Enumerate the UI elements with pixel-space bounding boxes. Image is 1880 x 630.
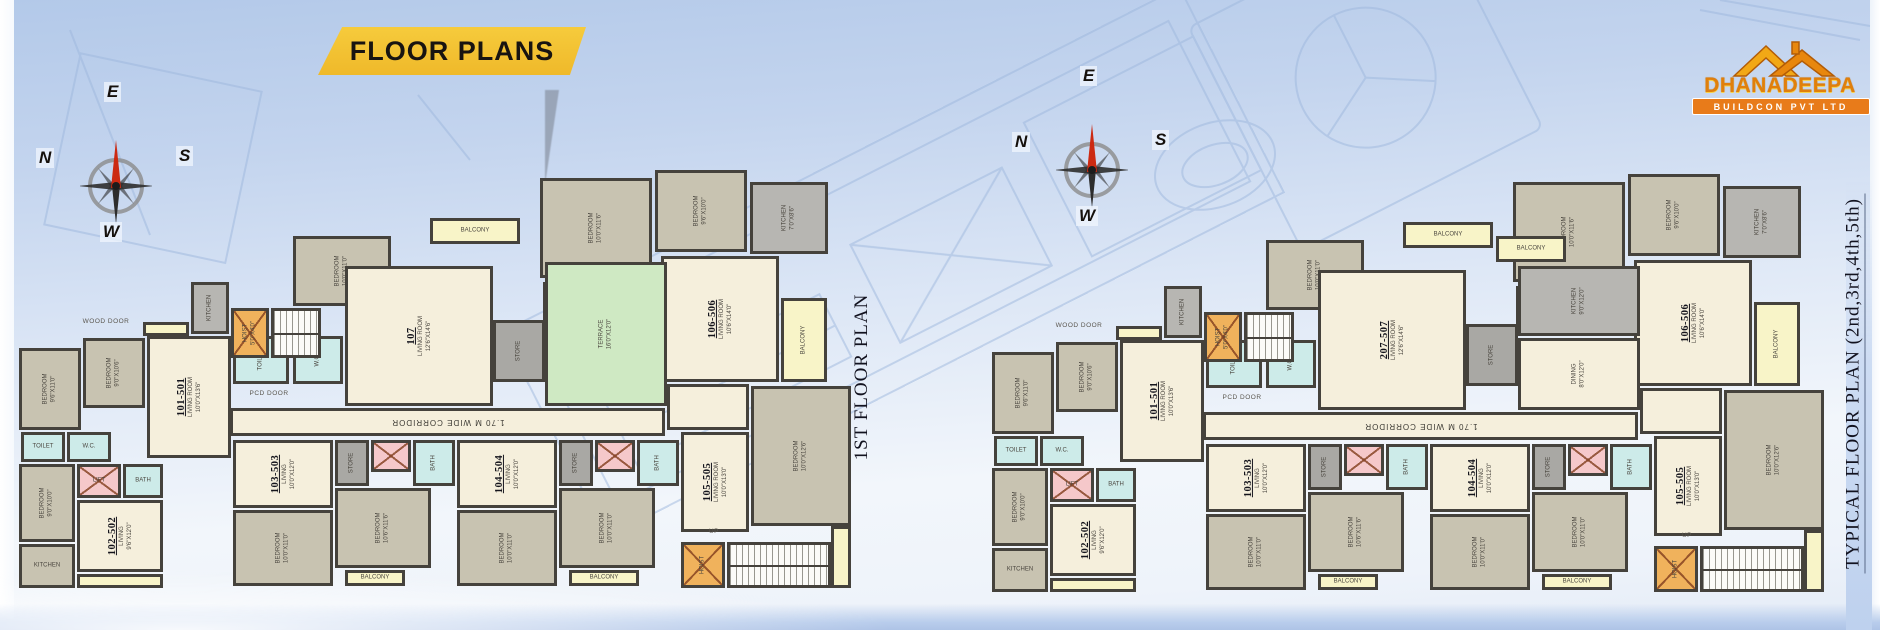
room-label: UP bbox=[709, 528, 719, 536]
unit-102-502: 102-502LIVING 9'6"X12'0" bbox=[77, 500, 163, 572]
room-bedroom: BEDROOM 10'0"X12'6" bbox=[751, 386, 851, 526]
unit-number-label: 104-504LIVING 10'0"X12'0" bbox=[1466, 459, 1494, 498]
room-label: LIFT bbox=[93, 477, 105, 485]
room-wood-door: WOOD DOOR bbox=[73, 316, 139, 328]
room-stair bbox=[271, 308, 321, 358]
unit-106-506: 106-506LIVING ROOM 10'6"X14'0" bbox=[1634, 260, 1752, 386]
room-label: BEDROOM 10'0"X11'0" bbox=[1473, 536, 1488, 567]
room-lift bbox=[371, 440, 411, 472]
room-label: BEDROOM 9'6"X11'0" bbox=[43, 373, 58, 404]
room-balcony: BALCONY bbox=[1318, 574, 1378, 590]
room-label: BEDROOM 9'6"X10'0" bbox=[694, 195, 709, 226]
compass-east-label: E bbox=[1080, 66, 1097, 86]
room-bedroom: BEDROOM 10'0"X12'6" bbox=[1724, 390, 1824, 530]
room-label: KITCHEN bbox=[1179, 299, 1187, 325]
room-label: TOILET bbox=[33, 443, 54, 451]
room-stair bbox=[1700, 546, 1804, 592]
room-kitchen: KITCHEN bbox=[19, 544, 75, 588]
room-living bbox=[1640, 388, 1722, 434]
room-lift: LIFT bbox=[77, 464, 121, 498]
room-toilet: TOILET bbox=[994, 436, 1038, 466]
room-label: PCD DOOR bbox=[1222, 394, 1261, 402]
unit-104-504: 104-504LIVING 10'0"X12'0" bbox=[1430, 444, 1530, 512]
room-label: BEDROOM 9'0"X10'6" bbox=[107, 357, 122, 388]
unit-101-501: 101-501LIVING ROOM 10'0"X13'6" bbox=[147, 336, 231, 458]
room-bedroom: BEDROOM 10'0"X11'0" bbox=[1206, 514, 1306, 590]
room-label: KITCHEN 7'0"X8'6" bbox=[1755, 209, 1770, 235]
room-label: STORE bbox=[1488, 345, 1496, 366]
room-lift bbox=[1568, 444, 1608, 476]
room-label: HOIST bbox=[699, 556, 707, 574]
room-hoist: HOIST bbox=[1654, 546, 1698, 592]
room-corridor: 1.70 M WIDE CORRIDOR bbox=[1203, 412, 1638, 440]
unit-107: 107LIVING ROOM 12'6"X14'6" bbox=[345, 266, 493, 406]
room-label: BALCONY bbox=[1434, 231, 1463, 239]
room-bedroom: BEDROOM 10'6"X11'6" bbox=[335, 488, 431, 568]
room-bedroom: BEDROOM 10'0"X11'0" bbox=[457, 510, 557, 586]
unit-103-503: 103-503LIVING 10'0"X12'0" bbox=[1206, 444, 1306, 512]
room-label: STORE bbox=[1545, 457, 1553, 478]
room-balcony: BALCONY bbox=[430, 218, 520, 244]
room-bath: BATH bbox=[413, 440, 455, 486]
room-label: BEDROOM 9'6"X11'0" bbox=[1016, 377, 1031, 408]
room-label: BALCONY bbox=[1563, 578, 1592, 586]
unit-105-505: 105-505LIVING ROOM 10'0"X13'0" bbox=[681, 432, 749, 532]
room-label: UP bbox=[1682, 532, 1692, 540]
unit-104-504: 104-504LIVING 10'0"X12'0" bbox=[457, 440, 557, 508]
room-label: HOIST bbox=[1672, 560, 1680, 578]
room-label: BEDROOM 10'6"X11'6" bbox=[376, 512, 391, 543]
unit-101-501: 101-501LIVING ROOM 10'0"X13'6" bbox=[1120, 340, 1204, 462]
room-label: BATH bbox=[1403, 459, 1411, 475]
room-balcony bbox=[1050, 578, 1136, 592]
left-white-margin bbox=[0, 0, 14, 630]
room-kitchen: KITCHEN bbox=[1164, 286, 1202, 338]
banner-title: FLOOR PLANS bbox=[318, 27, 586, 75]
room-label: BEDROOM 10'0"X11'0" bbox=[276, 532, 291, 563]
room-terrace: TERRACE 16'0"X12'0" bbox=[545, 262, 667, 406]
room-up: UP bbox=[701, 526, 727, 538]
room-label: BATH bbox=[135, 477, 151, 485]
room-lift bbox=[1344, 444, 1384, 476]
room-label: BALCONY bbox=[361, 574, 390, 582]
room-store: STORE bbox=[493, 320, 545, 382]
room-bath: BATH bbox=[1096, 468, 1136, 502]
room-label: WOOD DOOR bbox=[1056, 322, 1103, 330]
floor-plans-page: { "banner": { "label": "FLOOR PLANS" }, … bbox=[0, 0, 1880, 630]
room-label: BEDROOM 9'0"X10'0" bbox=[1013, 491, 1028, 522]
room-label: PCD DOOR bbox=[249, 390, 288, 398]
room-toilet: TOILET bbox=[21, 432, 65, 462]
room-label: WOOD DOOR bbox=[83, 318, 130, 326]
room-balcony: BALCONY bbox=[1403, 222, 1493, 248]
room-bedroom: BEDROOM 10'0"X11'0" bbox=[233, 510, 333, 586]
room-bedroom: BEDROOM 10'0"X11'0" bbox=[1532, 492, 1628, 572]
first-floor-plan-title: 1ST FLOOR PLAN bbox=[851, 277, 873, 477]
room-bath: BATH bbox=[1610, 444, 1652, 490]
room-living bbox=[667, 384, 749, 430]
room-label: 1.70 M WIDE CORRIDOR bbox=[391, 417, 504, 427]
room-balcony: BALCONY bbox=[345, 570, 405, 586]
room-label: BEDROOM 9'0"X10'6" bbox=[1080, 361, 1095, 392]
compass-north-label: N bbox=[1012, 132, 1030, 152]
room-bath: BATH bbox=[1386, 444, 1428, 490]
unit-number-label: 106-506LIVING ROOM 10'6"X14'0" bbox=[706, 299, 734, 339]
room-stair bbox=[727, 542, 831, 588]
room-bedroom: BEDROOM 9'6"X10'0" bbox=[1628, 174, 1720, 256]
room-bedroom: BEDROOM 10'6"X11'6" bbox=[1308, 492, 1404, 572]
room-bedroom: BEDROOM 9'0"X10'6" bbox=[83, 338, 145, 408]
room-label: BEDROOM 10'6"X11'6" bbox=[1349, 516, 1364, 547]
room-store: STORE bbox=[559, 440, 593, 486]
logo-company-name: DHANADEEPA bbox=[1682, 74, 1878, 98]
room-label: BEDROOM 10'0"X11'0" bbox=[1573, 516, 1588, 547]
unit-number-label: 102-502LIVING 9'6"X12'0" bbox=[1079, 521, 1107, 560]
room-store: STORE bbox=[335, 440, 369, 486]
unit-number-label: 105-505LIVING ROOM 10'0"X13'0" bbox=[701, 462, 729, 502]
room-hoist: HOIST bbox=[681, 542, 725, 588]
compass-east-label: E bbox=[104, 82, 121, 102]
room-bath: BATH bbox=[123, 464, 163, 498]
room-label: BALCONY bbox=[800, 326, 808, 355]
unit-105-505: 105-505LIVING ROOM 10'0"X13'0" bbox=[1654, 436, 1722, 536]
unit-number-label: 207-507LIVING ROOM 12'6"X14'6" bbox=[1378, 320, 1406, 360]
unit-number-label: 102-502LIVING 9'6"X12'0" bbox=[106, 517, 134, 556]
room-balcony: BALCONY bbox=[781, 298, 827, 382]
room-store: STORE bbox=[1466, 324, 1518, 386]
room-stair bbox=[1244, 312, 1294, 362]
room-label: TOILET bbox=[1006, 447, 1027, 455]
room-label: KITCHEN bbox=[1007, 566, 1033, 574]
room-label: BALCONY bbox=[1334, 578, 1363, 586]
room-balcony: BALCONY bbox=[569, 570, 639, 586]
room-balcony: BALCONY bbox=[1754, 302, 1800, 386]
unit-number-label: 107LIVING ROOM 12'6"X14'6" bbox=[405, 316, 433, 356]
room-label: BEDROOM 10'0"X12'6" bbox=[1767, 444, 1782, 475]
room-label: BATH bbox=[1627, 459, 1635, 475]
room-label: KITCHEN bbox=[206, 295, 214, 321]
room-balcony: BALCONY bbox=[1542, 574, 1612, 590]
room-label: KITCHEN 7'0"X8'6" bbox=[782, 205, 797, 231]
room-label: BEDROOM 10'0"X11'0" bbox=[500, 532, 515, 563]
logo-tagline: BUILDCON PVT LTD bbox=[1692, 98, 1870, 115]
room-label: W.C. bbox=[1056, 447, 1069, 455]
room-label: STORE bbox=[572, 453, 580, 474]
room-bedroom: BEDROOM 9'6"X11'0" bbox=[992, 352, 1054, 434]
room-label: BEDROOM 10'0"X11'6" bbox=[589, 212, 604, 243]
room-balcony bbox=[1804, 530, 1824, 592]
room-bedroom: BEDROOM 9'0"X10'6" bbox=[1056, 342, 1118, 412]
room-kitchen: KITCHEN 9'0"X12'0" bbox=[1518, 266, 1640, 336]
room-label: 1.70 M WIDE CORRIDOR bbox=[1364, 421, 1477, 431]
room-w-c-: W.C. bbox=[67, 432, 111, 462]
compass-south-label: S bbox=[176, 146, 193, 166]
unit-number-label: 106-506LIVING ROOM 10'6"X14'0" bbox=[1679, 303, 1707, 343]
room-label: W.C. bbox=[83, 443, 96, 451]
room-label: BEDROOM 9'6"X10'0" bbox=[1667, 199, 1682, 230]
room-balcony: BALCONY bbox=[1496, 236, 1566, 262]
typical-floor-plan-title: TYPICAL FLOOR PLAN (2nd,3rd,4th,5th) bbox=[1843, 194, 1866, 574]
room-label: BATH bbox=[430, 455, 438, 471]
room-hoist: HOIST 5'0"X4'0" bbox=[231, 308, 269, 358]
room-bedroom: BEDROOM 9'6"X11'0" bbox=[19, 348, 81, 430]
room-label: BALCONY bbox=[590, 574, 619, 582]
room-label: HOIST 5'0"X4'0" bbox=[1216, 325, 1231, 349]
logo-roof-icon bbox=[1704, 34, 1854, 78]
room-w-c-: W.C. bbox=[1040, 436, 1084, 466]
unit-number-label: 103-503LIVING 10'0"X12'0" bbox=[269, 455, 297, 494]
room-pcd-door: PCD DOOR bbox=[1210, 392, 1274, 404]
room-balcony bbox=[1116, 326, 1162, 340]
room-label: BEDROOM 10'0"X12'6" bbox=[794, 440, 809, 471]
room-pcd-door: PCD DOOR bbox=[237, 388, 301, 400]
room-label: LIFT bbox=[1066, 481, 1078, 489]
room-wood-door: WOOD DOOR bbox=[1046, 320, 1112, 332]
room-label: DINING 8'0"X12'0" bbox=[1572, 360, 1587, 387]
room-kitchen: KITCHEN 7'0"X8'6" bbox=[750, 182, 828, 254]
compass-north-label: N bbox=[36, 148, 54, 168]
room-label: BALCONY bbox=[461, 227, 490, 235]
unit-number-label: 104-504LIVING 10'0"X12'0" bbox=[493, 455, 521, 494]
room-store: STORE bbox=[1308, 444, 1342, 490]
room-label: BATH bbox=[654, 455, 662, 471]
room-label: BEDROOM 10'0"X11'0" bbox=[600, 512, 615, 543]
first-floor-plan-drawing: BEDROOM 10'0"X11'6"BEDROOM 9'6"X10'0"KIT… bbox=[15, 170, 855, 590]
room-bedroom: BEDROOM 10'0"X11'0" bbox=[1430, 514, 1530, 590]
room-lift: LIFT bbox=[1050, 468, 1094, 502]
room-label: KITCHEN 9'0"X12'0" bbox=[1572, 287, 1587, 314]
unit-207-507: 207-507LIVING ROOM 12'6"X14'6" bbox=[1318, 270, 1466, 410]
room-corridor: 1.70 M WIDE CORRIDOR bbox=[230, 408, 665, 436]
room-bedroom: BEDROOM 9'0"X10'0" bbox=[19, 464, 75, 542]
room-balcony bbox=[143, 322, 189, 336]
typical-floor-plan-drawing: BEDROOM 10'0"X11'6"BEDROOM 9'6"X10'0"KIT… bbox=[988, 174, 1828, 594]
room-kitchen: KITCHEN bbox=[992, 548, 1048, 592]
room-bedroom: BEDROOM 9'0"X10'0" bbox=[992, 468, 1048, 546]
room-lift bbox=[595, 440, 635, 472]
room-hoist: HOIST 5'0"X4'0" bbox=[1204, 312, 1242, 362]
room-label: BALCONY bbox=[1517, 245, 1546, 253]
room-label: TERRACE 16'0"X12'0" bbox=[599, 319, 614, 350]
unit-number-label: 101-501LIVING ROOM 10'0"X13'6" bbox=[1148, 381, 1176, 421]
room-kitchen: KITCHEN bbox=[191, 282, 229, 334]
room-label: BALCONY bbox=[1773, 330, 1781, 359]
room-bath: BATH bbox=[637, 440, 679, 486]
room-dining: DINING 8'0"X12'0" bbox=[1518, 338, 1640, 410]
room-bedroom: BEDROOM 10'0"X11'0" bbox=[559, 488, 655, 568]
room-balcony bbox=[831, 526, 851, 588]
room-label: BEDROOM 10'0"X11'0" bbox=[1249, 536, 1264, 567]
room-label: BEDROOM 9'0"X10'0" bbox=[40, 487, 55, 518]
room-kitchen: KITCHEN 7'0"X8'6" bbox=[1723, 186, 1801, 258]
unit-102-502: 102-502LIVING 9'6"X12'0" bbox=[1050, 504, 1136, 576]
unit-106-506: 106-506LIVING ROOM 10'6"X14'0" bbox=[661, 256, 779, 382]
floor-plans-banner: FLOOR PLANS bbox=[318, 27, 586, 75]
room-store: STORE bbox=[1532, 444, 1566, 490]
room-label: STORE bbox=[348, 453, 356, 474]
unit-number-label: 105-505LIVING ROOM 10'0"X13'0" bbox=[1674, 466, 1702, 506]
unit-number-label: 101-501LIVING ROOM 10'0"X13'6" bbox=[175, 377, 203, 417]
unit-103-503: 103-503LIVING 10'0"X12'0" bbox=[233, 440, 333, 508]
room-balcony bbox=[77, 574, 163, 588]
room-up: UP bbox=[1674, 530, 1700, 542]
compass-south-label: S bbox=[1152, 130, 1169, 150]
room-label: BATH bbox=[1108, 481, 1124, 489]
company-logo: DHANADEEPA BUILDCON PVT LTD bbox=[1682, 48, 1878, 114]
room-label: STORE bbox=[1321, 457, 1329, 478]
room-bedroom: BEDROOM 9'6"X10'0" bbox=[655, 170, 747, 252]
room-label: KITCHEN bbox=[34, 562, 60, 570]
unit-number-label: 103-503LIVING 10'0"X12'0" bbox=[1242, 459, 1270, 498]
room-label: STORE bbox=[515, 341, 523, 362]
room-label: HOIST 5'0"X4'0" bbox=[243, 321, 258, 345]
